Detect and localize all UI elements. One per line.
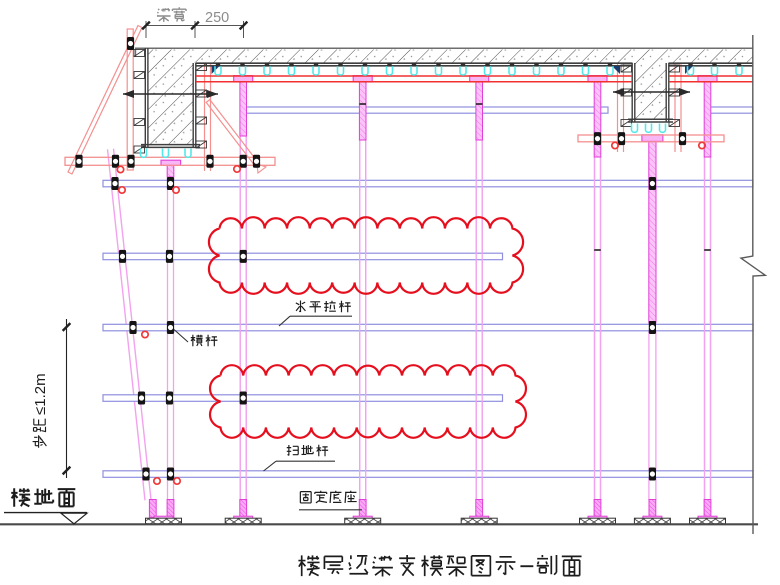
svg-text:≤1.2m: ≤1.2m — [32, 373, 49, 415]
svg-text:250: 250 — [205, 10, 229, 26]
